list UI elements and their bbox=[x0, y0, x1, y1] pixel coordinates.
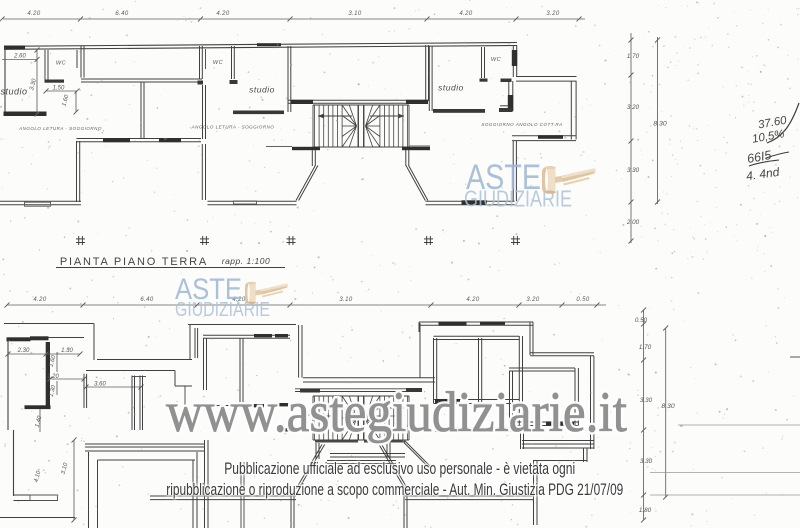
svg-text:1.40: 1.40 bbox=[35, 415, 44, 428]
svg-text:3.20: 3.20 bbox=[627, 104, 640, 111]
svg-text:3.60: 3.60 bbox=[94, 382, 106, 388]
svg-text:4.20: 4.20 bbox=[33, 297, 47, 303]
svg-text:2.30: 2.30 bbox=[17, 348, 30, 354]
svg-text:3.30: 3.30 bbox=[640, 397, 653, 404]
svg-text:4.20: 4.20 bbox=[459, 11, 473, 17]
svg-text:3.30: 3.30 bbox=[627, 167, 640, 174]
svg-text:3.20: 3.20 bbox=[546, 11, 560, 17]
svg-text:0.50: 0.50 bbox=[576, 297, 590, 303]
svg-text:studio: studio bbox=[249, 85, 275, 95]
svg-text:1.70: 1.70 bbox=[627, 53, 640, 60]
svg-text:6.40: 6.40 bbox=[140, 297, 154, 303]
svg-text:GIUDIZIARIE: GIUDIZIARIE bbox=[464, 186, 572, 212]
svg-text:4.20: 4.20 bbox=[216, 11, 230, 17]
svg-text:3.20: 3.20 bbox=[526, 297, 540, 303]
svg-text:3.10: 3.10 bbox=[348, 11, 362, 17]
svg-text:SOGGIORNO ANGOLO COTT.RA: SOGGIORNO ANGOLO COTT.RA bbox=[481, 122, 562, 127]
svg-text:4.20: 4.20 bbox=[466, 297, 480, 303]
svg-text:studio: studio bbox=[438, 83, 464, 93]
svg-text:1.70: 1.70 bbox=[639, 344, 652, 351]
svg-text:WC: WC bbox=[491, 57, 501, 63]
svg-text:1.20: 1.20 bbox=[47, 374, 59, 380]
svg-text:6.40: 6.40 bbox=[115, 11, 129, 17]
svg-text:WC: WC bbox=[213, 60, 223, 66]
svg-text:www.astegiudiziarie.it: www.astegiudiziarie.it bbox=[166, 381, 627, 444]
svg-text:1.50: 1.50 bbox=[53, 86, 65, 92]
svg-text:8.30: 8.30 bbox=[653, 121, 666, 128]
svg-text:0.50: 0.50 bbox=[635, 317, 648, 324]
svg-text:studio: studio bbox=[0, 87, 27, 97]
svg-text:WC: WC bbox=[56, 61, 66, 67]
svg-text:8.30: 8.30 bbox=[661, 403, 674, 410]
svg-text:3.10: 3.10 bbox=[339, 297, 353, 303]
svg-text:4.20: 4.20 bbox=[27, 11, 41, 17]
svg-text:PIANTA PIANO TERRA: PIANTA PIANO TERRA bbox=[60, 256, 208, 268]
svg-text:rapp. 1:100: rapp. 1:100 bbox=[222, 256, 271, 266]
svg-text:1.80: 1.80 bbox=[639, 507, 652, 514]
svg-text:1.60: 1.60 bbox=[62, 94, 71, 107]
svg-text:2.00: 2.00 bbox=[626, 219, 640, 226]
svg-text:2.60: 2.60 bbox=[13, 54, 26, 60]
svg-text:ANGOLO LETURA - SOGGIORNO: ANGOLO LETURA - SOGGIORNO bbox=[191, 125, 275, 130]
svg-text:ANGOLO LETURA - SOGGIORNO: ANGOLO LETURA - SOGGIORNO bbox=[18, 126, 102, 131]
